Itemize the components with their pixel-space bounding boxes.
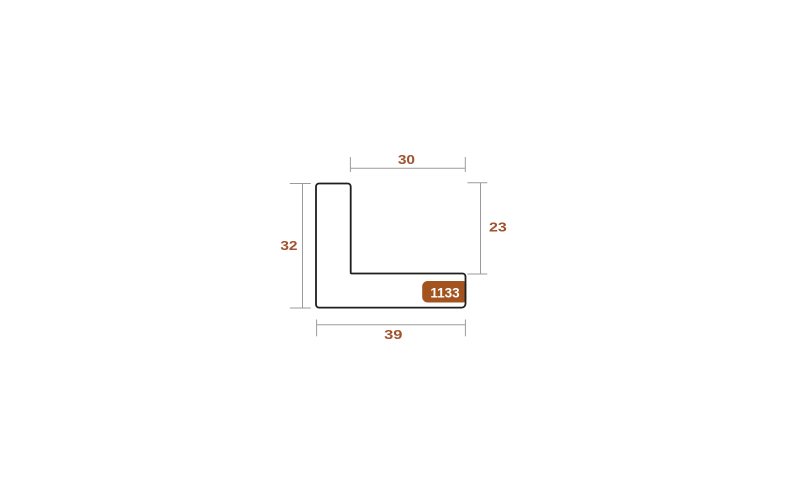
svg-text:23: 23 (489, 221, 507, 235)
svg-text:32: 32 (280, 239, 297, 254)
svg-text:1133: 1133 (430, 285, 460, 300)
svg-text:39: 39 (384, 327, 402, 342)
svg-text:30: 30 (398, 153, 415, 168)
